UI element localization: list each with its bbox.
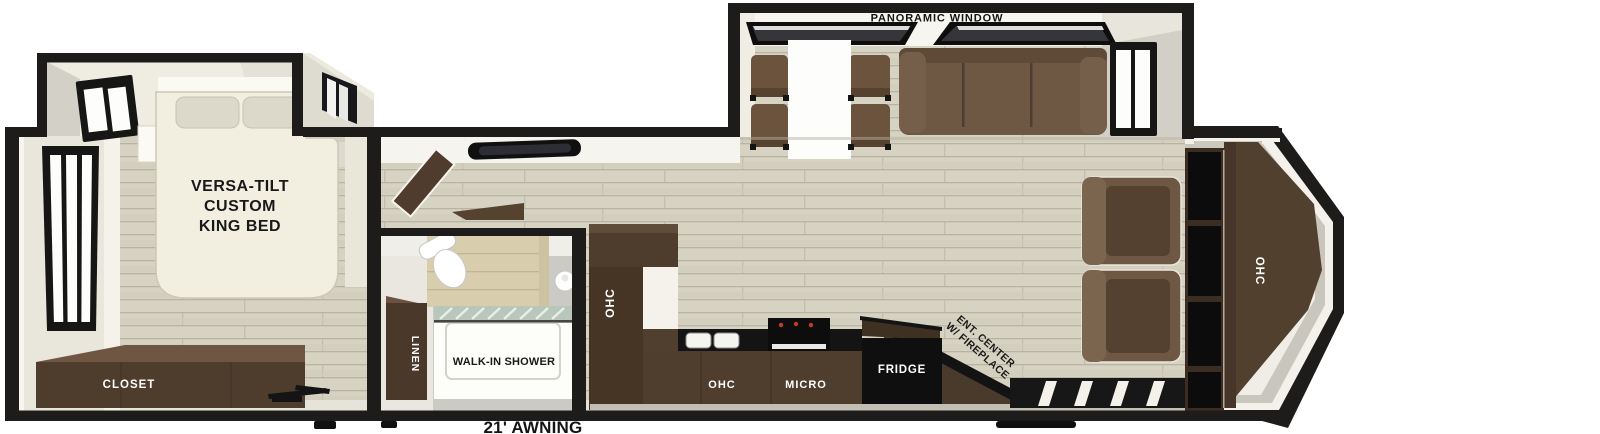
svg-text:MICRO: MICRO [785,379,827,391]
svg-text:OHC: OHC [1253,257,1265,286]
svg-text:21' AWNING: 21' AWNING [484,418,583,434]
svg-text:PANORAMIC WINDOW: PANORAMIC WINDOW [871,13,1004,25]
svg-text:CUSTOM: CUSTOM [204,198,276,215]
svg-text:VERSA-TILT: VERSA-TILT [191,178,289,195]
svg-text:FRIDGE: FRIDGE [878,364,926,376]
svg-text:CLOSET: CLOSET [103,379,156,391]
svg-text:OHC: OHC [603,288,617,318]
svg-text:WALK-IN SHOWER: WALK-IN SHOWER [453,356,555,368]
svg-text:KING BED: KING BED [199,218,281,235]
svg-text:LINEN: LINEN [409,336,421,373]
svg-text:OHC: OHC [708,379,735,391]
